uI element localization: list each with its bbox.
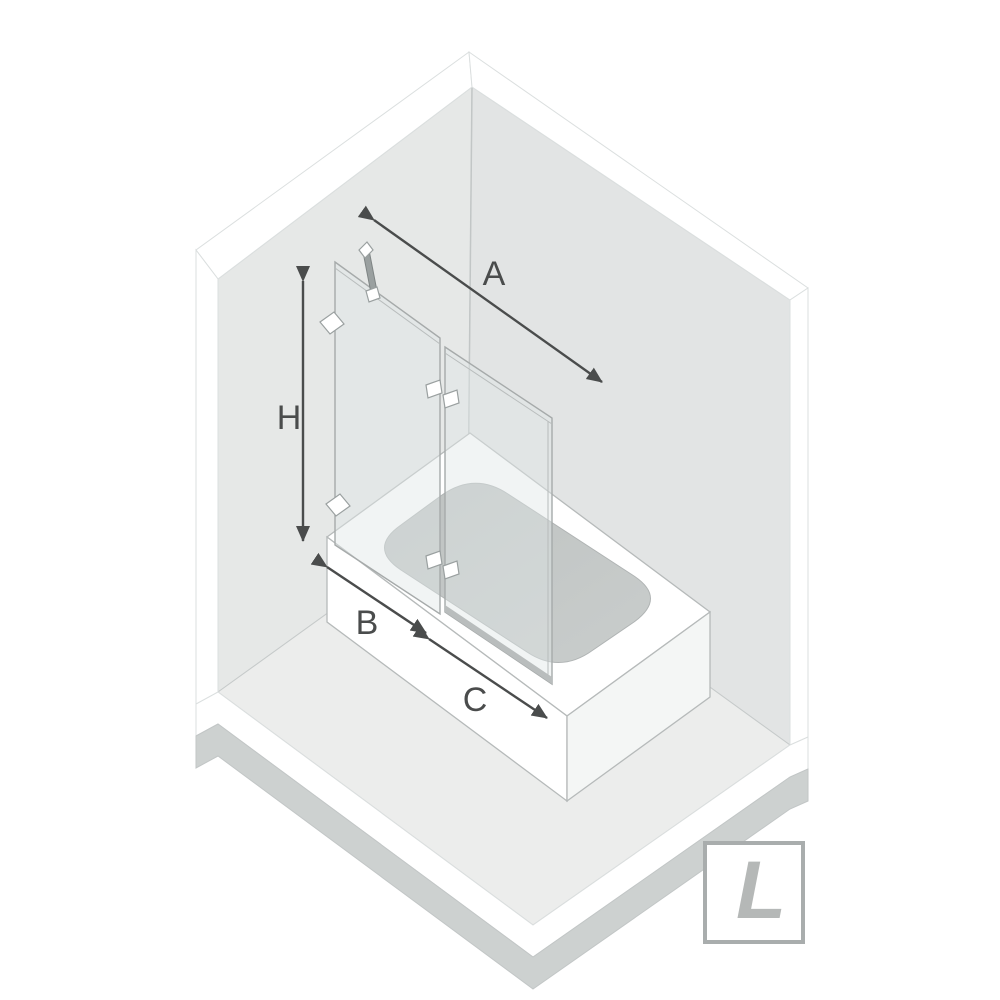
dimension-label-H: H: [277, 399, 302, 437]
dimension-label-B: B: [356, 604, 379, 642]
product-diagram: A H B C L: [0, 0, 1000, 1000]
wall-bevel-left: [196, 250, 218, 705]
dimension-label-A: A: [483, 255, 506, 293]
dimension-label-C: C: [463, 681, 488, 719]
wall-bevel-right: [790, 288, 808, 745]
isometric-scene: A H B C L: [0, 0, 1000, 1000]
orientation-badge: L: [705, 843, 803, 942]
